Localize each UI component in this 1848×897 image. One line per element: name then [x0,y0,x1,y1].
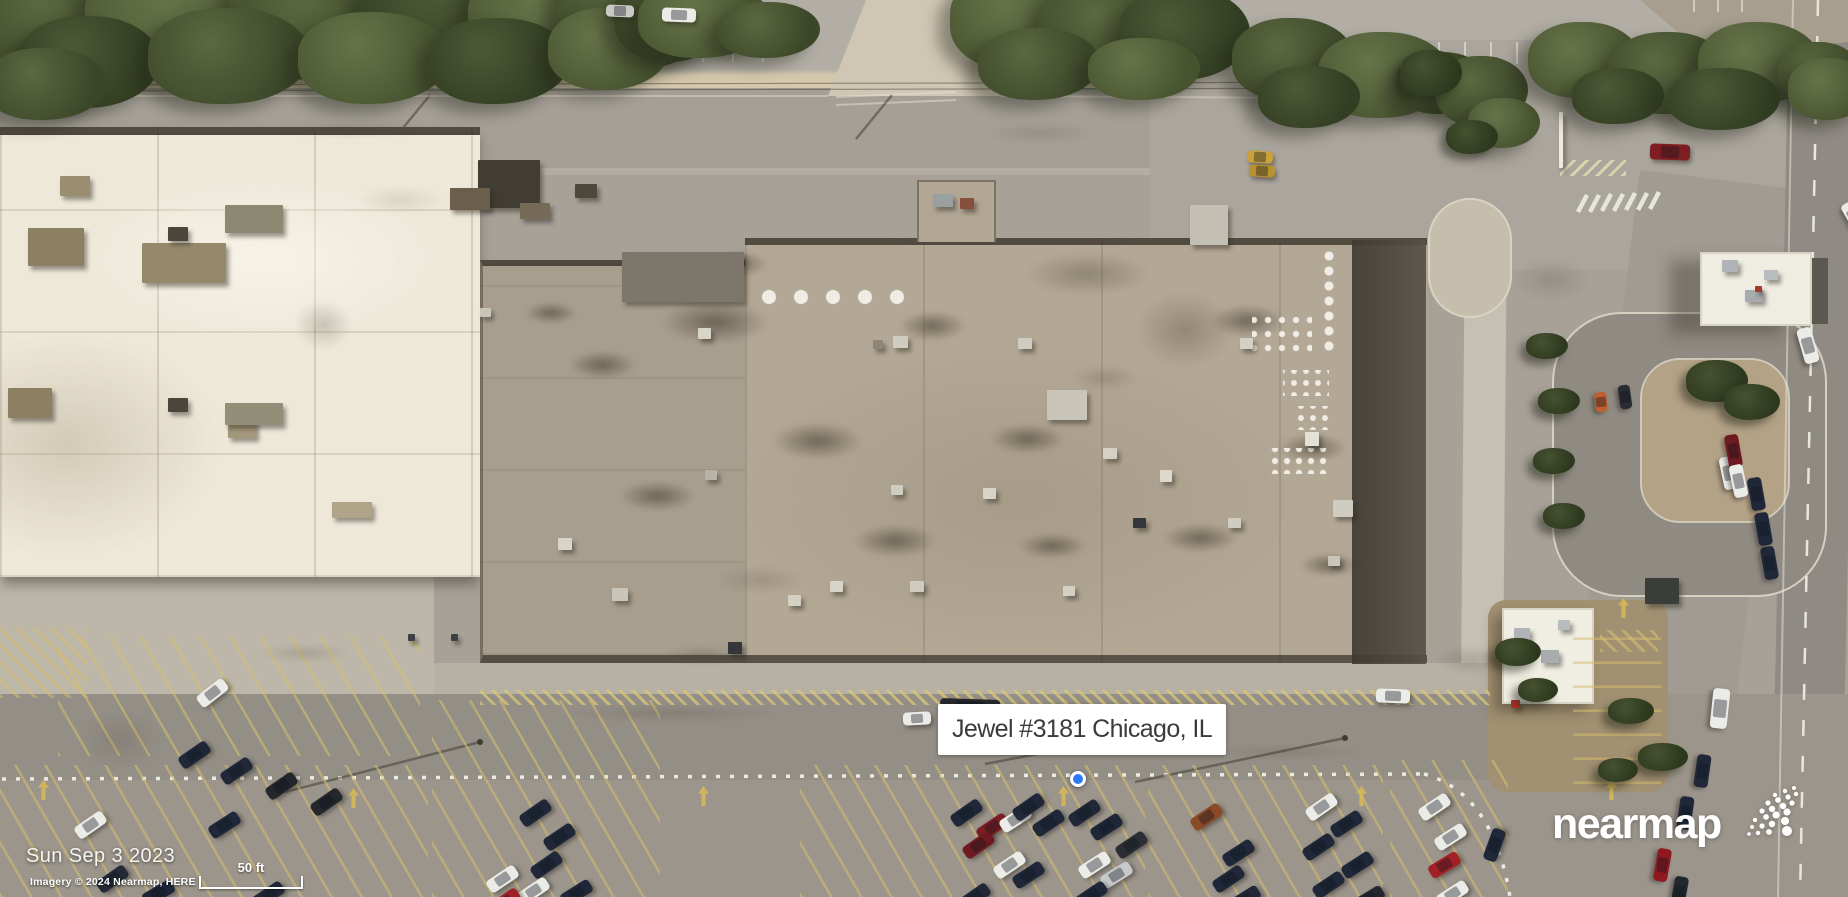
tree [978,28,1100,100]
rooftop-unit [960,198,974,209]
pavement-arrow [1618,598,1629,618]
stain [960,118,1120,148]
nearmap-logo-icon [1747,786,1803,842]
tree [1538,388,1580,414]
tree [1668,68,1780,130]
tree [1258,66,1360,128]
car [1754,512,1774,547]
pavement-arrow [698,786,709,806]
stain [520,700,820,726]
imagery-attribution: Imagery © 2024 Nearmap, HERE [30,876,196,888]
stain [755,415,880,467]
car [1653,848,1673,883]
stain [60,700,180,780]
car [662,7,696,22]
rooftop-unit [558,538,572,550]
rooftop-unit [1328,556,1340,566]
rooftop-unit [1228,518,1241,528]
stain [838,518,953,564]
rooftop-unit [520,203,550,219]
rooftop-vent-grid [1320,250,1338,352]
place-label[interactable]: Jewel #3181 Chicago, IL [938,704,1226,755]
car [1376,688,1410,703]
rooftop-unit [8,388,52,418]
scale-bar-bracket [199,876,303,889]
tree [1724,384,1780,420]
map-canvas[interactable]: Jewel #3181 Chicago, IL Sun Sep 3 2023 I… [0,0,1848,897]
scale-bar-label: 50 ft [199,860,303,875]
stain [605,475,710,517]
rooftop-unit [575,184,597,198]
rooftop-unit [408,634,415,641]
rooftop-unit [142,243,226,283]
rooftop-unit [728,642,742,654]
rooftop-unit [1018,338,1032,349]
car [1693,754,1711,789]
car [1617,384,1632,409]
rooftop-vent-grid [754,287,912,307]
rooftop-unit [168,227,188,241]
rooftop-unit [1103,448,1117,459]
tree [718,2,820,58]
rooftop-unit [612,588,628,601]
tree [1638,743,1688,771]
tree [1518,678,1558,702]
stain [515,298,587,328]
rooftop-unit [1063,586,1075,596]
car [1840,200,1848,232]
rooftop-unit [1240,338,1253,349]
rooftop-unit [1190,205,1228,245]
tree [0,48,107,120]
car [606,5,634,18]
rooftop-unit [873,340,883,349]
car [1796,326,1820,365]
scale-bar: 50 ft [199,860,303,889]
car [1709,688,1730,730]
rooftop-unit [225,205,283,233]
rooftop-unit [1764,270,1778,280]
car [1728,463,1749,498]
rooftop-unit [910,581,924,592]
tree [1526,333,1568,359]
car [1747,477,1767,512]
rooftop-unit [1160,470,1172,482]
rooftop-unit [698,328,711,339]
rooftop-unit [891,485,903,495]
rooftop-unit [28,228,84,266]
rooftop-unit [1133,518,1146,528]
car [1760,546,1780,581]
stain [250,118,450,142]
rooftop-unit [451,634,458,641]
car [1249,164,1276,178]
tree [1543,503,1585,529]
stain [555,345,650,385]
scene-layer [0,0,1848,897]
parking-lines [1600,630,1658,652]
stain [340,180,460,220]
rooftop-vent-grid [1252,310,1312,358]
rooftop-unit [1305,432,1319,446]
stain [283,290,363,360]
car [1594,391,1608,412]
rooftop-unit [1541,650,1559,663]
tree [1495,638,1541,666]
rooftop-unit [60,176,90,196]
rooftop-unit [225,403,283,425]
car [1670,876,1690,897]
rooftop-unit [1755,286,1762,292]
car [1650,143,1691,160]
stain [240,640,370,666]
rooftop-unit [480,308,491,317]
stain [975,418,1080,460]
nearmap-logo-text: nearmap [1552,803,1721,846]
car [1247,150,1274,164]
tree [1788,58,1848,120]
rooftop-unit [1047,390,1087,420]
rooftop-unit [1333,500,1353,517]
rooftop-unit [450,188,490,210]
tree [1533,448,1575,474]
rooftop-unit [893,336,908,348]
rooftop-unit [168,398,188,412]
parking-lines [0,628,88,698]
rooftop-unit [933,194,953,207]
rooftop-unit [830,581,843,592]
parking-lines [1560,160,1626,176]
rooftop-unit [622,252,744,302]
rooftop-unit [1558,620,1570,630]
place-marker-dot[interactable] [1070,771,1086,787]
rooftop-unit [983,488,996,499]
stain [700,560,820,600]
rooftop-unit [788,595,801,606]
rooftop-unit [332,502,372,518]
rooftop-unit [1645,578,1679,604]
rooftop-unit [1559,112,1563,168]
tree [148,8,310,104]
tree [1446,120,1498,154]
tree [1088,38,1200,100]
rooftop-unit [705,470,717,480]
parking-lines [1693,0,1753,12]
car [903,711,932,725]
capture-date: Sun Sep 3 2023 [26,845,175,868]
tree [1572,68,1664,124]
rooftop-vent-grid [1283,370,1329,396]
stain [1496,250,1606,310]
rooftop-unit [1722,260,1738,272]
rooftop-vent-grid [1268,448,1330,474]
stain [1005,528,1100,564]
rooftop-vent-grid [1293,406,1333,430]
rooftop-unit [1511,700,1520,708]
